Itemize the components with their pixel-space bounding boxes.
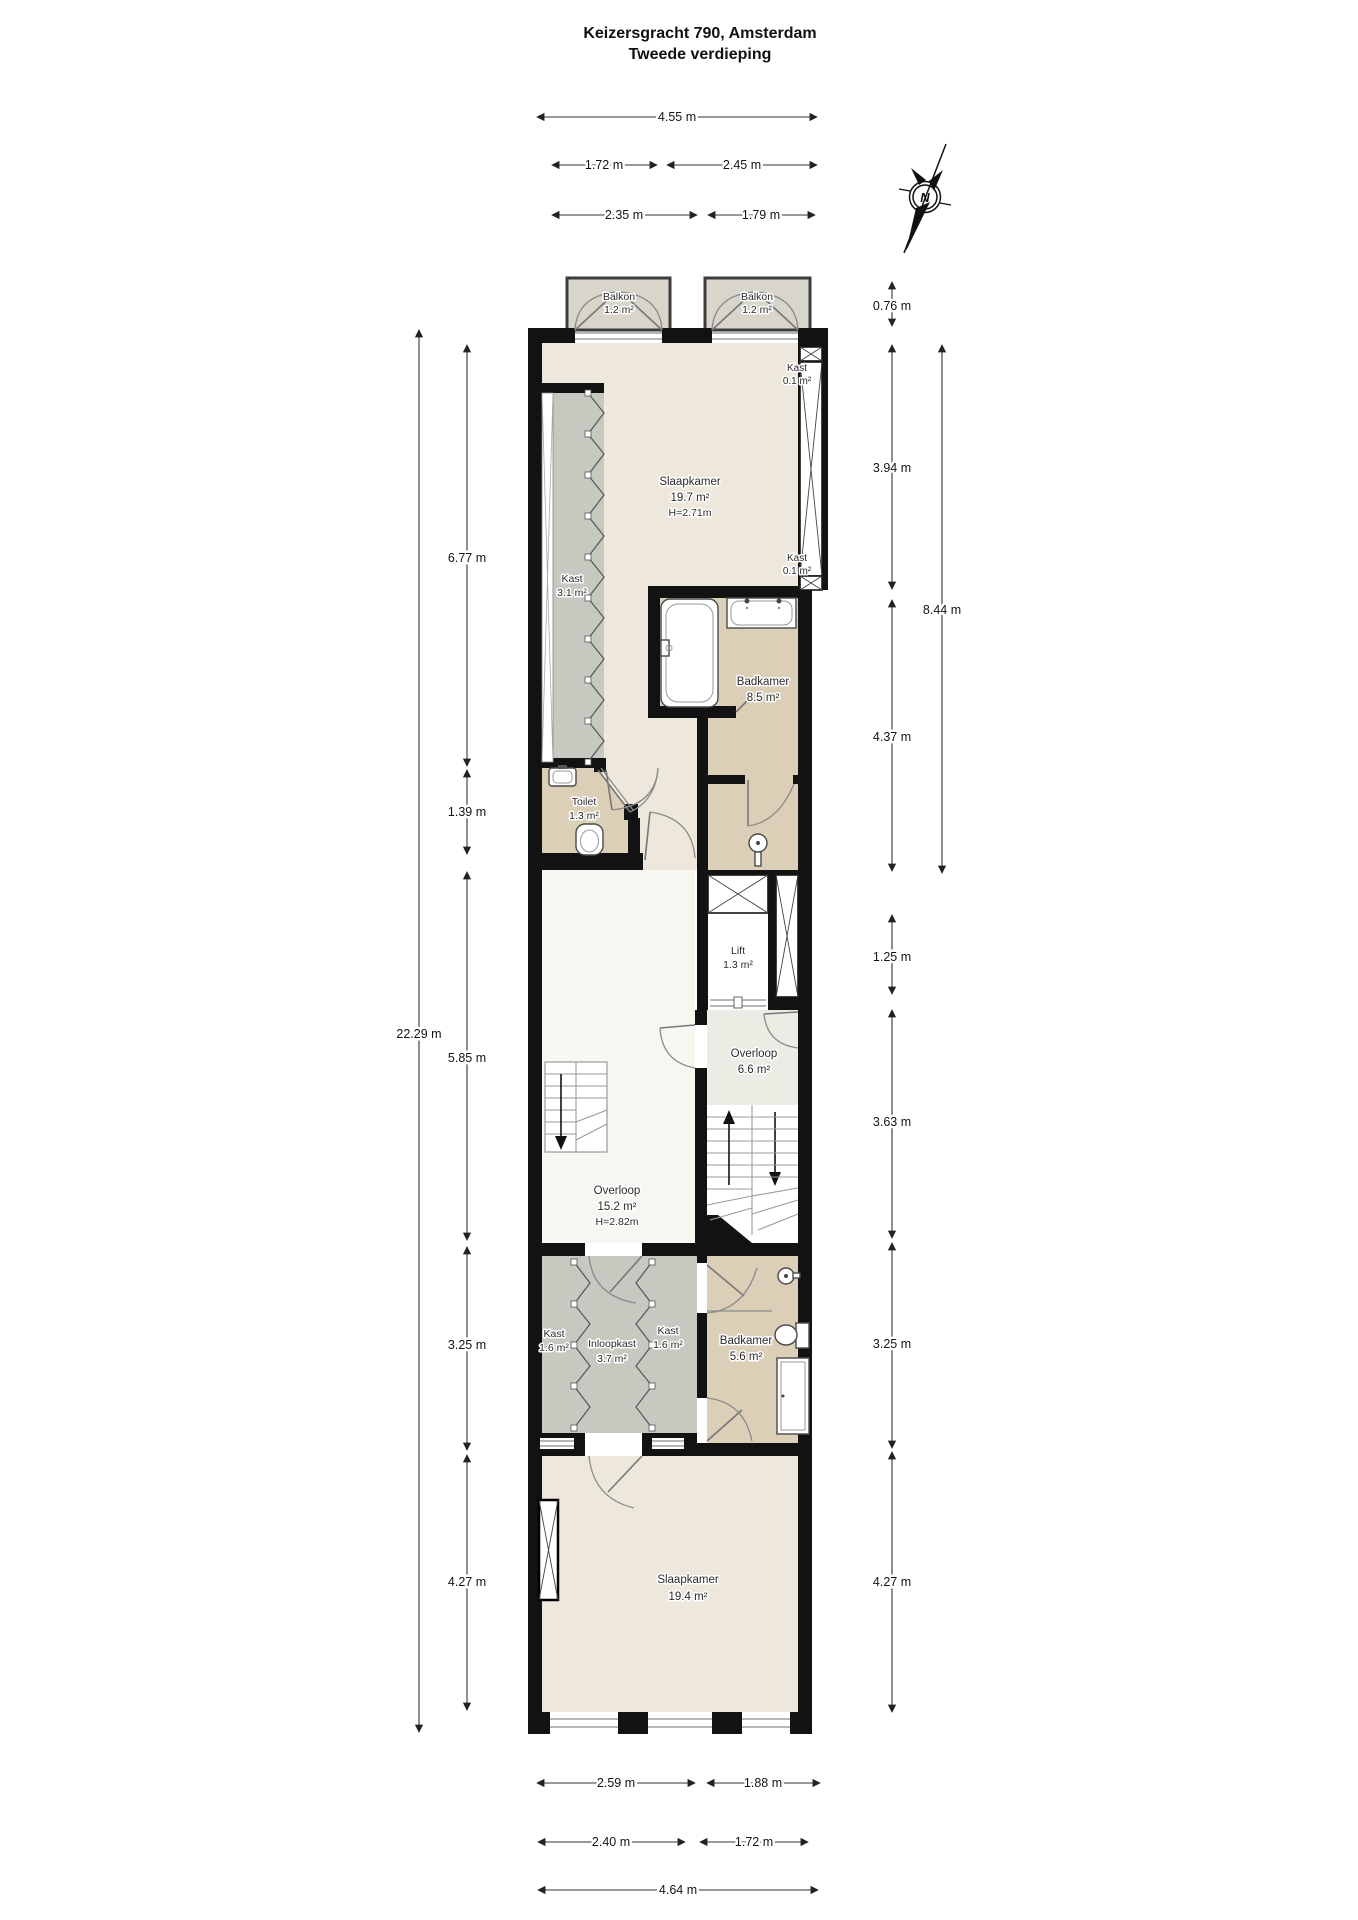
- dim-right-outer: 8.44 m: [923, 603, 961, 617]
- stair-landing-large: [545, 1062, 607, 1152]
- dim-top-total: 4.55 m: [658, 110, 696, 124]
- toilet-bowl: [576, 824, 603, 855]
- svg-text:Balkon: Balkon: [741, 291, 773, 303]
- svg-text:8.5 m²: 8.5 m²: [747, 692, 780, 704]
- dim-bottom-2r: 1.72 m: [735, 1835, 773, 1849]
- svg-text:0.1 m²: 0.1 m²: [783, 376, 812, 387]
- dim-right-balcony: 0.76 m: [873, 299, 911, 313]
- window: [540, 1438, 574, 1449]
- compass-north-label: N: [920, 190, 930, 205]
- dim-right-3: 1.25 m: [873, 950, 911, 964]
- wall-top-center: [662, 328, 712, 343]
- dim-top-3l: 2.35 m: [605, 208, 643, 222]
- lift: [710, 997, 766, 1008]
- dim-top-3r: 1.79 m: [742, 208, 780, 222]
- window: [742, 1715, 790, 1729]
- dim-left-5: 4.27 m: [448, 1575, 486, 1589]
- svg-text:0.1 m²: 0.1 m²: [783, 566, 812, 577]
- svg-text:Badkamer: Badkamer: [720, 1335, 773, 1347]
- vanity-unit: [777, 1358, 809, 1434]
- dim-bottom-total: 4.64 m: [659, 1883, 697, 1897]
- wall-niche-left: [542, 393, 553, 762]
- svg-text:19.7 m²: 19.7 m²: [671, 492, 710, 504]
- svg-text:3.1 m²: 3.1 m²: [557, 587, 587, 599]
- plan-title: Keizersgracht 790, Amsterdam: [583, 25, 816, 42]
- compass-rose-icon: N: [899, 144, 951, 253]
- room-label-balkon-left: Balkon 1.2 m²: [603, 291, 635, 316]
- plan-subtitle: Tweede verdieping: [629, 46, 772, 63]
- svg-text:Inloopkast: Inloopkast: [588, 1338, 636, 1350]
- svg-text:Slaapkamer: Slaapkamer: [659, 476, 721, 488]
- svg-text:Overloop: Overloop: [594, 1185, 641, 1197]
- svg-text:H=2.71m: H=2.71m: [669, 507, 712, 519]
- svg-text:Kast: Kast: [787, 363, 807, 374]
- svg-text:1.2 m²: 1.2 m²: [742, 304, 772, 316]
- dim-bottom-2l: 2.40 m: [592, 1835, 630, 1849]
- svg-text:Kast: Kast: [543, 1328, 564, 1340]
- svg-text:Kast: Kast: [787, 553, 807, 564]
- washbasin-double: [727, 598, 796, 628]
- toilet-sink: [549, 765, 576, 786]
- svg-text:1.3 m²: 1.3 m²: [723, 959, 753, 971]
- dim-left-1: 6.77 m: [448, 551, 486, 565]
- svg-text:1.6 m²: 1.6 m²: [653, 1339, 683, 1351]
- svg-text:Kast: Kast: [561, 573, 582, 585]
- svg-text:Balkon: Balkon: [603, 291, 635, 303]
- floorplan-page: Keizersgracht 790, Amsterdam Tweede verd…: [0, 0, 1358, 1920]
- dim-bottom-1r: 1.88 m: [744, 1776, 782, 1790]
- svg-text:19.4 m²: 19.4 m²: [669, 1591, 708, 1603]
- window: [648, 1715, 712, 1729]
- dim-top-2l: 1.72 m: [585, 158, 623, 172]
- window: [652, 1438, 684, 1449]
- room-label-overloop-large: Overloop 15.2 m² H=2.82m: [594, 1185, 641, 1228]
- svg-text:1.2 m²: 1.2 m²: [604, 304, 634, 316]
- dim-right-1: 3.94 m: [873, 461, 911, 475]
- shaft-right-of-lift: [776, 875, 798, 997]
- chimney-bedroom-bottom: [539, 1500, 558, 1600]
- floorplan-drawing: Keizersgracht 790, Amsterdam Tweede verd…: [0, 0, 1358, 1920]
- dim-left-outer: 22.29 m: [396, 1027, 441, 1041]
- svg-text:Toilet: Toilet: [572, 796, 597, 808]
- bathtub: [661, 599, 718, 707]
- dim-bottom-1l: 2.59 m: [597, 1776, 635, 1790]
- room-label-balkon-right: Balkon 1.2 m²: [741, 291, 773, 316]
- svg-text:15.2 m²: 15.2 m²: [598, 1201, 637, 1213]
- dim-right-4: 3.63 m: [873, 1115, 911, 1129]
- lift-door: [734, 997, 742, 1008]
- svg-text:6.6 m²: 6.6 m²: [738, 1064, 771, 1076]
- svg-text:H=2.82m: H=2.82m: [596, 1216, 639, 1228]
- svg-text:Overloop: Overloop: [731, 1048, 778, 1060]
- dim-right-6: 4.27 m: [873, 1575, 911, 1589]
- svg-text:1.3 m²: 1.3 m²: [569, 810, 599, 822]
- svg-text:5.6 m²: 5.6 m²: [730, 1351, 763, 1363]
- svg-text:Badkamer: Badkamer: [737, 676, 790, 688]
- dim-left-3: 5.85 m: [448, 1051, 486, 1065]
- window: [550, 1715, 618, 1729]
- svg-text:Kast: Kast: [657, 1325, 678, 1337]
- dim-top-2r: 2.45 m: [723, 158, 761, 172]
- dim-left-2: 1.39 m: [448, 805, 486, 819]
- dim-right-2: 4.37 m: [873, 730, 911, 744]
- svg-text:3.7 m²: 3.7 m²: [597, 1353, 627, 1365]
- dim-left-4: 3.25 m: [448, 1338, 486, 1352]
- wall-top-left: [528, 328, 575, 343]
- lift-shaft-top: [708, 875, 768, 913]
- svg-text:Slaapkamer: Slaapkamer: [657, 1574, 719, 1586]
- svg-text:Lift: Lift: [731, 945, 745, 957]
- dim-right-5: 3.25 m: [873, 1337, 911, 1351]
- svg-text:1.6 m²: 1.6 m²: [539, 1342, 569, 1354]
